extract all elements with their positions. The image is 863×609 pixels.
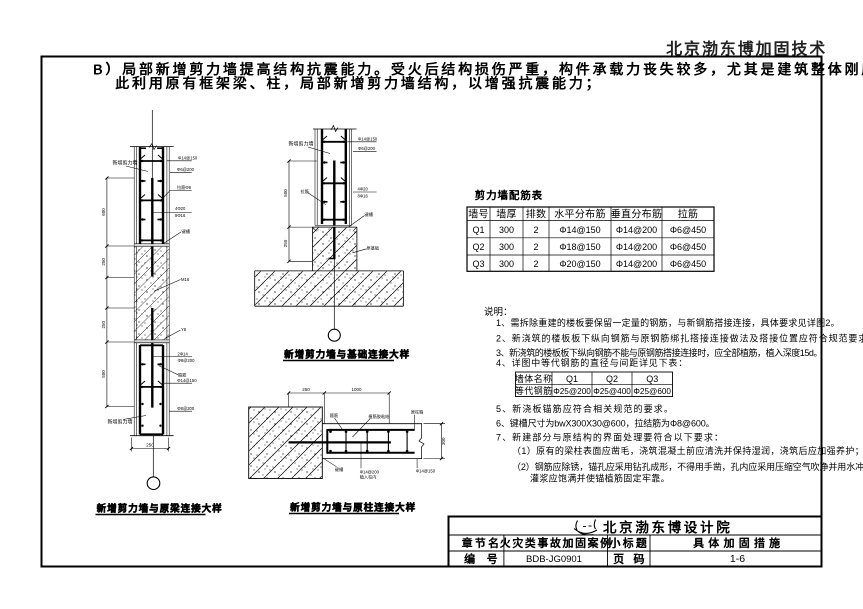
svg-text:（1）原有的梁柱表面应凿毛，浇筑混凝土前应清洗并保持湿润，浇: （1）原有的梁柱表面应凿毛，浇筑混凝土前应清洗并保持湿润，浇筑后应加强养护； [512,445,863,456]
svg-text:植入柱内: 植入柱内 [360,473,377,480]
svg-text:2: 2 [533,225,538,235]
svg-text:页: 页 [613,554,624,566]
svg-text:2Φ14: 2Φ14 [178,351,189,356]
svg-text:新增剪力墙: 新增剪力墙 [113,160,138,167]
svg-text:等代钢筋: 等代钢筋 [515,385,553,396]
svg-text:章节名: 章节名 [461,536,501,550]
svg-text:排数: 排数 [526,207,547,220]
svg-text:6、键槽尺寸为bwX300X30@600，拉结筋为Φ8@60: 6、键槽尺寸为bwX300X30@600，拉结筋为Φ8@600。 [496,418,715,429]
svg-text:250: 250 [101,258,106,266]
svg-text:编: 编 [464,552,475,566]
svg-text:300: 300 [441,437,446,445]
svg-text:火灾类事故加固案例: 火灾类事故加固案例 [500,536,613,550]
svg-text:300: 300 [499,259,514,269]
svg-text:（2）钢筋应除锈，锚孔应采用钻孔成形，不得用手凿，孔内应采用: （2）钢筋应除锈，锚孔应采用钻孔成形，不得用手凿，孔内应采用压缩空气吹净并用水冲… [512,461,863,472]
svg-text:水平分布筋: 水平分布筋 [554,207,606,220]
svg-text:Φ6@450: Φ6@450 [670,225,706,235]
svg-text:Φ8@200: Φ8@200 [178,358,196,363]
svg-text:墙号: 墙号 [468,207,489,220]
svg-text:拉筋Φ6: 拉筋Φ6 [177,184,192,191]
svg-text:Y8: Y8 [181,327,187,332]
svg-text:Φ20@150: Φ20@150 [559,259,600,269]
svg-text:新增剪力墙与原柱连接大样: 新增剪力墙与原柱连接大样 [290,502,416,514]
svg-text:Φ6@200: Φ6@200 [177,167,195,172]
svg-text:Φ14@150: Φ14@150 [177,378,197,383]
svg-text:2、新浇筑的楼板板下纵向钢筋与原钢筋绑扎搭接连接做法及搭接位: 2、新浇筑的楼板板下纵向钢筋与原钢筋绑扎搭接连接做法及搭接位置应符合规范要求。 [496,333,863,344]
svg-text:北京渤东博设计院: 北京渤东博设计院 [603,519,733,535]
svg-text:Φ14@150: Φ14@150 [416,469,436,474]
svg-text:500: 500 [101,370,106,378]
svg-text:2: 2 [533,242,538,252]
svg-text:原基础: 原基础 [367,245,380,252]
svg-text:8Φ16: 8Φ16 [358,194,369,199]
svg-text:键槽: 键槽 [182,228,191,235]
svg-text:Φ14@200: Φ14@200 [616,242,657,252]
svg-text:Φ25@400: Φ25@400 [593,387,631,396]
svg-text:Q1: Q1 [472,225,484,235]
svg-text:小标题: 小标题 [609,536,649,550]
svg-text:此利用原有框架梁、柱，局部新增剪力墙结构，以增强抗震能力；: 此利用原有框架梁、柱，局部新增剪力墙结构，以增强抗震能力； [115,75,602,92]
svg-text:Φ6@200: Φ6@200 [358,146,376,151]
svg-text:垂直分布筋: 垂直分布筋 [611,207,663,220]
svg-text:剪力墙配筋表: 剪力墙配筋表 [475,189,543,202]
svg-text:原柱箍: 原柱箍 [411,409,424,416]
svg-text:1-6: 1-6 [730,553,745,565]
svg-text:250: 250 [283,239,288,247]
svg-text:Φ14@150: Φ14@150 [358,136,378,141]
svg-text:号: 号 [487,553,498,566]
svg-text:1000: 1000 [351,387,362,392]
svg-text:4Φ20: 4Φ20 [358,187,369,192]
svg-text:Q3: Q3 [646,374,658,384]
svg-text:Φ14@150: Φ14@150 [559,225,600,235]
svg-text:BDB-JG0901: BDB-JG0901 [526,554,582,565]
svg-text:2: 2 [533,259,538,269]
svg-text:300: 300 [499,225,514,235]
svg-text:新增剪力墙与原梁连接大样: 新增剪力墙与原梁连接大样 [97,503,223,515]
svg-text:键槽: 键槽 [365,211,374,218]
svg-text:500: 500 [283,189,288,197]
svg-text:Φ6@450: Φ6@450 [670,242,706,252]
svg-text:北京渤东博加固技术: 北京渤东博加固技术 [666,40,827,58]
svg-text:Φ25@600: Φ25@600 [633,387,671,396]
svg-text:8Φ16: 8Φ16 [175,213,186,218]
svg-text:Q3: Q3 [472,259,484,269]
svg-text:Φ25@200: Φ25@200 [553,387,591,396]
svg-text:Φ14@150: Φ14@150 [178,155,198,160]
svg-text:4、详图中等代钢筋的直径与间距详见下表：: 4、详图中等代钢筋的直径与间距详见下表： [496,357,688,368]
svg-text:Q2: Q2 [472,242,484,252]
svg-text:新增剪力墙与基础连接大样: 新增剪力墙与基础连接大样 [284,349,410,361]
svg-text:新增剪力墙: 新增剪力墙 [289,140,314,147]
svg-text:250: 250 [101,320,106,328]
svg-text:灌浆应饱满并使锚植筋固定牢靠。: 灌浆应饱满并使锚植筋固定牢靠。 [530,473,670,484]
svg-text:新增剪力墙: 新增剪力墙 [108,418,133,425]
svg-text:Φ8@200: Φ8@200 [177,406,195,411]
svg-text:说明：: 说明： [484,306,513,318]
svg-text:墙厚: 墙厚 [496,207,517,220]
svg-text:300: 300 [499,242,514,252]
svg-text:具体加固措施: 具体加固措施 [693,536,784,550]
svg-text:Φ18@150: Φ18@150 [559,242,600,252]
svg-text:Q2: Q2 [606,374,618,384]
svg-text:5、新浇板锚筋应符合相关规范的要求。: 5、新浇板锚筋应符合相关规范的要求。 [496,403,674,414]
svg-text:600: 600 [101,208,106,216]
svg-text:码: 码 [633,553,644,566]
svg-text:拉筋: 拉筋 [678,207,699,220]
svg-text:Φ14@200: Φ14@200 [616,259,657,269]
svg-text:250: 250 [302,387,310,392]
svg-text:4Φ20: 4Φ20 [175,206,186,211]
svg-text:拉筋: 拉筋 [301,188,309,195]
svg-text:Φ6@450: Φ6@450 [670,259,706,269]
svg-text:1、需拆除重建的楼板要保留一定量的钢筋，与新钢筋搭接连接，具: 1、需拆除重建的楼板要保留一定量的钢筋，与新钢筋搭接连接，具体要求见详图2。 [496,317,840,328]
svg-text:键槽: 键槽 [335,466,344,473]
svg-text:箍筋: 箍筋 [330,412,338,419]
svg-text:3、新浇筑的楼板板下纵向钢筋不能与原钢筋搭接连接时，应全部植: 3、新浇筑的楼板板下纵向钢筋不能与原钢筋搭接连接时，应全部植筋，植入深度15d。 [496,347,822,358]
svg-text:墙体名称: 墙体名称 [515,373,553,384]
svg-text:7、新建部分与原结构的界面处理要符合以下要求：: 7、新建部分与原结构的界面处理要符合以下要求： [496,432,724,443]
svg-text:M16: M16 [181,277,190,282]
svg-text:植筋胶粘结: 植筋胶粘结 [368,413,389,420]
svg-text:Φ14@200: Φ14@200 [616,225,657,235]
svg-text:Q1: Q1 [566,374,578,384]
